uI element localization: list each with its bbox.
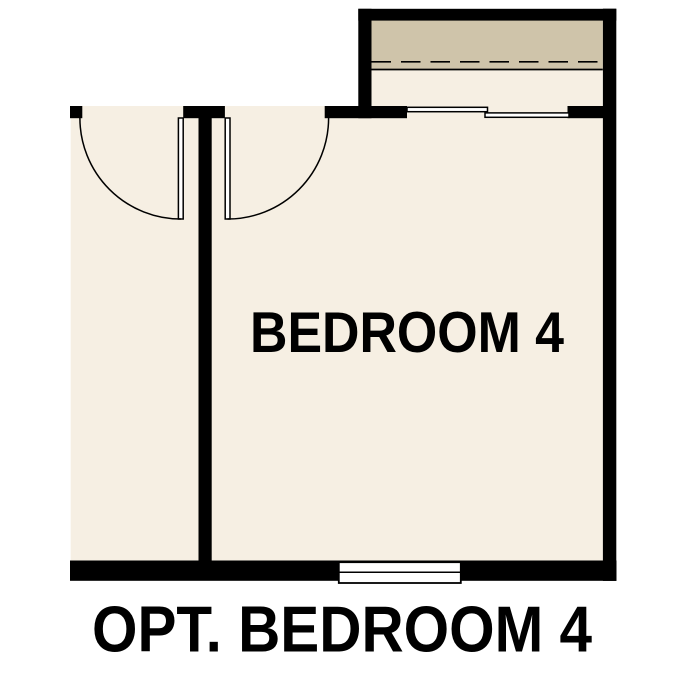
svg-text:OPT. BEDROOM 4: OPT. BEDROOM 4 <box>92 593 592 666</box>
svg-text:BEDROOM 4: BEDROOM 4 <box>250 301 564 365</box>
